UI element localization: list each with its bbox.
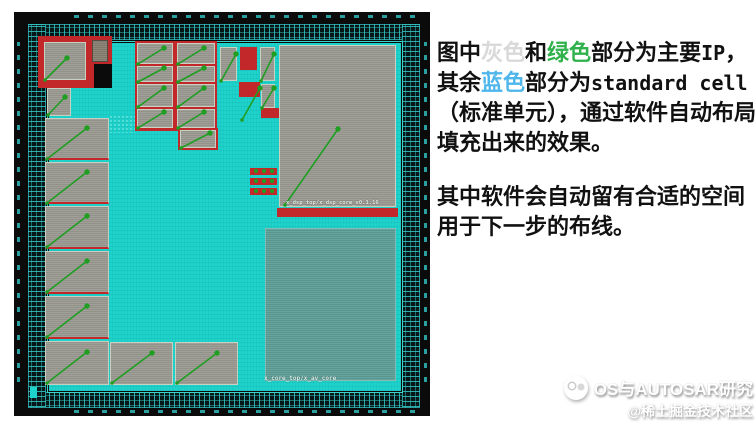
red-keepout-region — [240, 47, 257, 70]
text-run: 部分为主要 — [591, 40, 701, 65]
macro-block — [45, 162, 109, 204]
text-run: standard cell — [591, 71, 748, 95]
brand-logo-icon — [564, 376, 588, 400]
macro-block — [44, 42, 86, 80]
macro-block — [175, 342, 238, 385]
corner-pad — [30, 387, 37, 398]
macro-block — [92, 40, 108, 62]
green-pin-dot — [254, 169, 258, 173]
ruler-dashes-left — [17, 42, 20, 382]
green-pin-dot — [270, 169, 274, 173]
macro-block — [137, 66, 173, 82]
green-pin-dot — [254, 179, 258, 183]
paragraph-1: 图中灰色和绿色部分为主要IP，其余蓝色部分为standard cell（标准单元… — [437, 38, 756, 158]
pad-cluster-bar — [250, 168, 277, 175]
macro-block — [47, 88, 71, 116]
green-pin-dot — [262, 179, 266, 183]
text-run: IP — [701, 41, 725, 65]
large-ip-block — [279, 45, 396, 207]
watermark: OS与AUTOSAR研究 @稀土掘金技术社区 — [564, 375, 753, 421]
text-run: 灰色 — [481, 40, 525, 65]
macro-block — [177, 109, 215, 128]
text-run: 蓝色 — [481, 70, 525, 95]
macro-block — [177, 43, 215, 64]
red-keepout-region — [239, 82, 260, 97]
ruler-dashes-bottom — [74, 410, 416, 413]
text-run: 和 — [525, 40, 547, 65]
large-ip-block — [265, 228, 396, 381]
macro-block — [45, 118, 109, 160]
green-pin-dot — [270, 189, 274, 193]
chip-floorplan-image: x_dsp_top/x_dsp_core_v0.1.16 x_core_top/… — [14, 12, 430, 416]
watermark-handle: @稀土掘金技术社区 — [627, 401, 753, 421]
text-run: 图中 — [437, 40, 481, 65]
text-run: 绿色 — [547, 40, 591, 65]
page: x_dsp_top/x_dsp_core_v0.1.16 x_core_top/… — [0, 0, 756, 426]
pad-cluster-bar — [250, 178, 277, 185]
die-notch — [94, 64, 112, 88]
ruler-dashes-top — [74, 15, 416, 18]
macro-block — [177, 84, 215, 107]
macro-block — [137, 43, 173, 64]
article-text: 图中灰色和绿色部分为主要IP，其余蓝色部分为standard cell（标准单元… — [437, 38, 756, 242]
paragraph-2: 其中软件会自动留有合适的空间用于下一步的布线。 — [437, 182, 756, 242]
macro-block — [220, 47, 237, 81]
fill-texture-patch — [109, 115, 135, 133]
green-pin-dot — [262, 189, 266, 193]
core-instance-label: x_core_top/x_av_core — [264, 375, 336, 382]
text-run: 部分为 — [525, 70, 591, 95]
macro-block — [177, 66, 215, 82]
red-keepout-region — [261, 108, 281, 118]
green-pin-dot — [254, 189, 258, 193]
macro-block — [261, 84, 275, 108]
pad-ring-bottom — [28, 392, 420, 408]
macro-block — [45, 296, 109, 339]
macro-instance-label: x_dsp_top/x_dsp_core_v0.1.16 — [286, 200, 379, 206]
macro-block — [45, 206, 109, 249]
green-pin-dot — [270, 179, 274, 183]
macro-block — [137, 109, 173, 128]
ruler-dashes-right — [424, 42, 427, 382]
red-keepout-region — [277, 208, 398, 217]
text-run: （标准单元），通过软件自动布局填充出来的效果。 — [437, 100, 756, 155]
watermark-brand: OS与AUTOSAR研究 — [594, 375, 753, 400]
green-pin-dot — [262, 169, 266, 173]
macro-block — [137, 84, 173, 107]
macro-block — [45, 341, 109, 385]
macro-block — [180, 130, 216, 148]
macro-block — [110, 342, 173, 385]
pad-ring-right — [402, 24, 420, 408]
pad-cluster-bar — [250, 188, 277, 195]
macro-block — [45, 251, 109, 294]
macro-block — [260, 47, 275, 81]
